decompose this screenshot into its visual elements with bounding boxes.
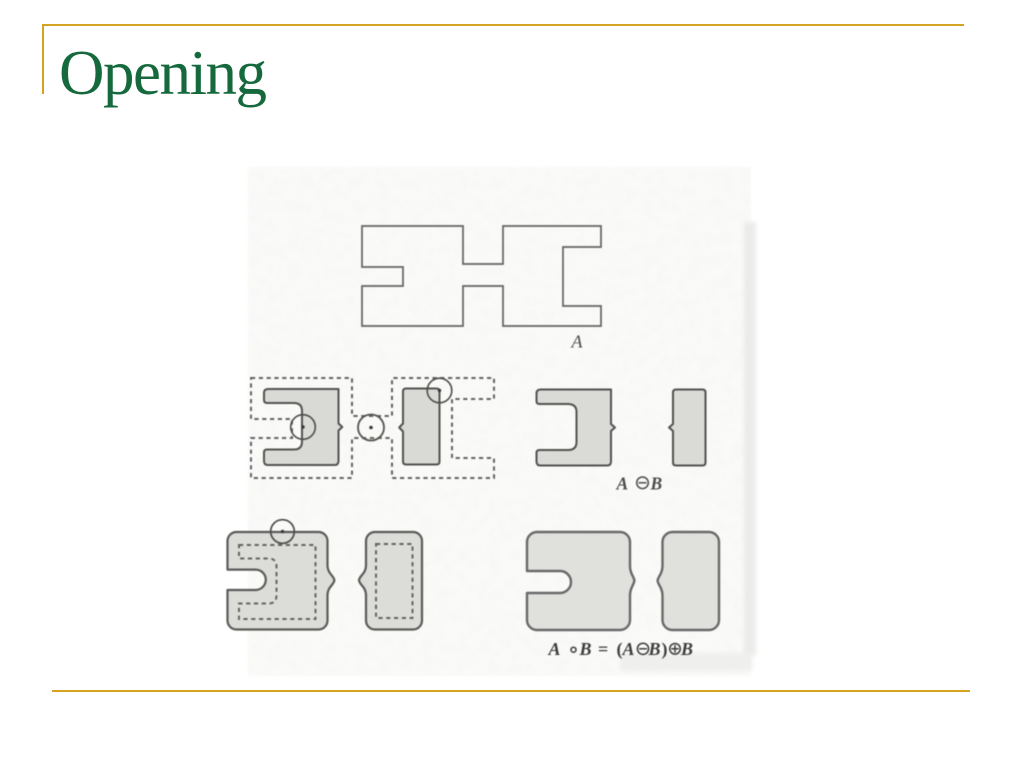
svg-text:): ) [662, 639, 668, 660]
svg-text:B: B [680, 639, 693, 659]
svg-text:B: B [579, 639, 592, 659]
svg-text:A: A [548, 639, 561, 659]
svg-text:B: B [650, 474, 663, 494]
svg-text:A: A [616, 474, 629, 494]
svg-text:B: B [648, 639, 661, 659]
svg-text:=: = [598, 639, 608, 659]
svg-text:A: A [571, 332, 584, 352]
svg-text:A: A [622, 639, 635, 659]
